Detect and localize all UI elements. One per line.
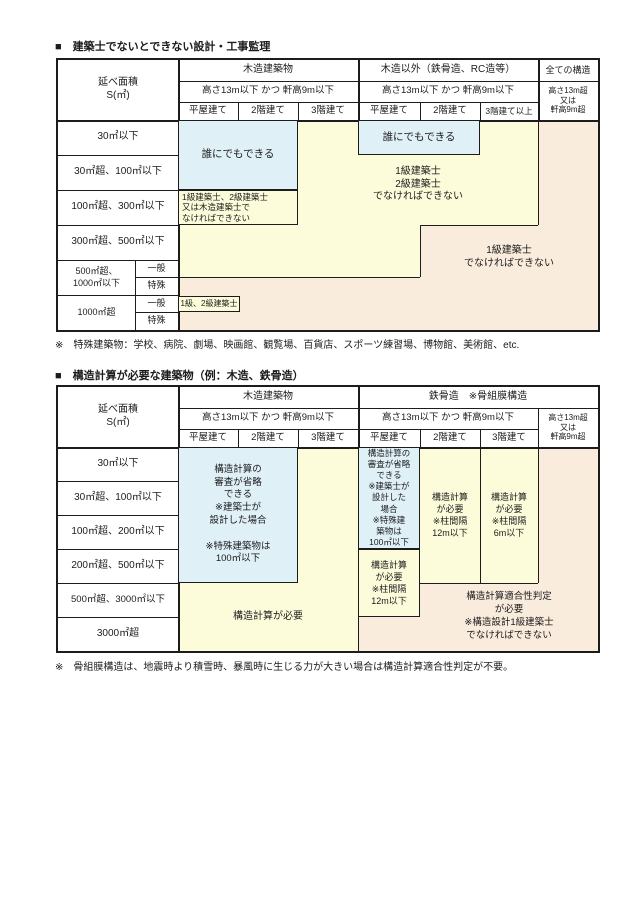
header-storey: 2階建て bbox=[420, 429, 480, 447]
header-storey: 3階建て bbox=[480, 429, 538, 447]
row-label: 30㎡超、100㎡以下 bbox=[58, 481, 178, 515]
zone-wood-small-box: 1級建築士、2級建築士 又は木造建築士で なければできない bbox=[178, 190, 298, 225]
zone-judgement-fill bbox=[358, 617, 420, 651]
zone-anyone-wood: 誰にでもできる bbox=[178, 120, 298, 190]
row-label: 30㎡以下 bbox=[58, 447, 178, 481]
zone-class1-text: 1級建築士 でなければできない bbox=[420, 235, 598, 281]
zone-step-line bbox=[538, 447, 539, 583]
row-label: 30㎡以下 bbox=[58, 120, 178, 155]
header-condition-tall: 高さ13m超 又は 軒高9m超 bbox=[538, 408, 598, 447]
header-storey: 3階建て以上 bbox=[480, 102, 538, 120]
header-condition-wood: 高さ13m以下 かつ 軒高9m以下 bbox=[178, 81, 358, 102]
zone-class12-text: 1級建築士 2級建築士 でなければできない bbox=[328, 155, 508, 215]
zone-step-line bbox=[358, 617, 359, 651]
header-storey: 2階建て bbox=[420, 102, 480, 120]
header-area: 延べ面積 S(㎡) bbox=[58, 387, 178, 447]
row-label: 30㎡超、100㎡以下 bbox=[58, 155, 178, 190]
zone-anyone-nonwood: 誰にでもできる bbox=[358, 120, 480, 155]
zone-wood-skip: 構造計算の 審査が省略 できる ※建築士が 設計した場合 ※特殊建築物は 100… bbox=[178, 447, 298, 583]
header-condition-steel: 高さ13m以下 かつ 軒高9m以下 bbox=[358, 408, 538, 429]
zone-step-line bbox=[420, 583, 538, 584]
zone-steel-skip: 構造計算の 審査が省略 できる ※建築士が 設計した 場合 ※特殊建 築物は 1… bbox=[358, 447, 420, 549]
document-page: ■ 建築士でないとできない設計・工事監理 延べ面 bbox=[0, 0, 640, 906]
row-label: 500㎡超、3000㎡以下 bbox=[58, 583, 178, 617]
table2-note: ※ 骨組膜構造は、地震時より積雪時、暴風時に生じる力が大きい場合は構造計算適合性… bbox=[55, 658, 513, 673]
row-label: 200㎡超、500㎡以下 bbox=[58, 549, 178, 583]
header-storey: 平屋建て bbox=[358, 102, 420, 120]
header-storey: 3階建て bbox=[298, 102, 358, 120]
header-group-steel: 鉄骨造 ※骨組膜構造 bbox=[358, 387, 598, 408]
header-storey: 平屋建て bbox=[178, 102, 238, 120]
table1-note: ※ 特殊建築物：学校、病院、劇場、映画館、観覧場、百貨店、スポーツ練習場、博物館… bbox=[55, 336, 519, 351]
zone-box-over1000: 1級、2級建築士 bbox=[178, 296, 240, 312]
header-storey: 平屋建て bbox=[178, 429, 238, 447]
header-storey: 2階建て bbox=[238, 429, 298, 447]
header-condition-wood: 高さ13m以下 かつ 軒高9m以下 bbox=[178, 408, 358, 429]
header-storey: 2階建て bbox=[238, 102, 298, 120]
zone-steel-1f-required: 構造計算 が必要 ※柱間隔 12m以下 bbox=[358, 549, 420, 617]
row-label: 300㎡超、500㎡以下 bbox=[58, 225, 178, 260]
header-storey: 平屋建て bbox=[358, 429, 420, 447]
zone-class12-fill bbox=[178, 225, 298, 277]
row-label: 100㎡超、200㎡以下 bbox=[58, 515, 178, 549]
header-group-nonwood: 木造以外（鉄骨造、RC造等） bbox=[358, 60, 538, 81]
sub-row-special: 特殊 bbox=[135, 277, 178, 295]
sub-row-general: 一般 bbox=[135, 260, 178, 277]
zone-step-line bbox=[420, 225, 538, 226]
table1: 延べ面積 S(㎡) 木造建築物 木造以外（鉄骨造、RC造等） 全ての構造 高さ1… bbox=[56, 58, 600, 332]
header-group-all: 全ての構造 bbox=[538, 60, 598, 81]
header-condition-tall: 高さ13m超 又は 軒高9m超 bbox=[538, 81, 598, 120]
zone-class1-fill bbox=[538, 120, 598, 330]
sub-row-general: 一般 bbox=[135, 295, 178, 312]
header-condition-nonwood: 高さ13m以下 かつ 軒高9m以下 bbox=[358, 81, 538, 102]
header-area: 延べ面積 S(㎡) bbox=[58, 60, 178, 120]
zone-step-line bbox=[538, 120, 539, 225]
table2-title: ■ 構造計算が必要な建築物（例：木造、鉄骨造） bbox=[55, 367, 304, 383]
header-storey: 3階建て bbox=[298, 429, 358, 447]
zone-steel-3f-text: 構造計算 が必要 ※柱間隔 6m以下 bbox=[480, 447, 538, 583]
zone-step-line bbox=[178, 277, 420, 278]
row-label: 100㎡超、300㎡以下 bbox=[58, 190, 178, 225]
sub-row-special: 特殊 bbox=[135, 312, 178, 330]
table1-title: ■ 建築士でないとできない設計・工事監理 bbox=[55, 38, 270, 54]
header-group-wood: 木造建築物 bbox=[178, 387, 358, 408]
row-label: 500㎡超、 1000㎡以下 bbox=[58, 260, 135, 295]
zone-steel-2f-text: 構造計算 が必要 ※柱間隔 12m以下 bbox=[420, 447, 480, 583]
zone-wood-required-text: 構造計算が必要 bbox=[178, 583, 358, 651]
row-label: 3000㎡超 bbox=[58, 617, 178, 651]
table2: 延べ面積 S(㎡) 木造建築物 鉄骨造 ※骨組膜構造 高さ13m以下 かつ 軒高… bbox=[56, 385, 600, 653]
zone-judgement-text: 構造計算適合性判定 が必要 ※構造設計1級建築士 でなければできない bbox=[420, 587, 598, 647]
header-group-wood: 木造建築物 bbox=[178, 60, 358, 81]
row-label: 1000㎡超 bbox=[58, 295, 135, 330]
